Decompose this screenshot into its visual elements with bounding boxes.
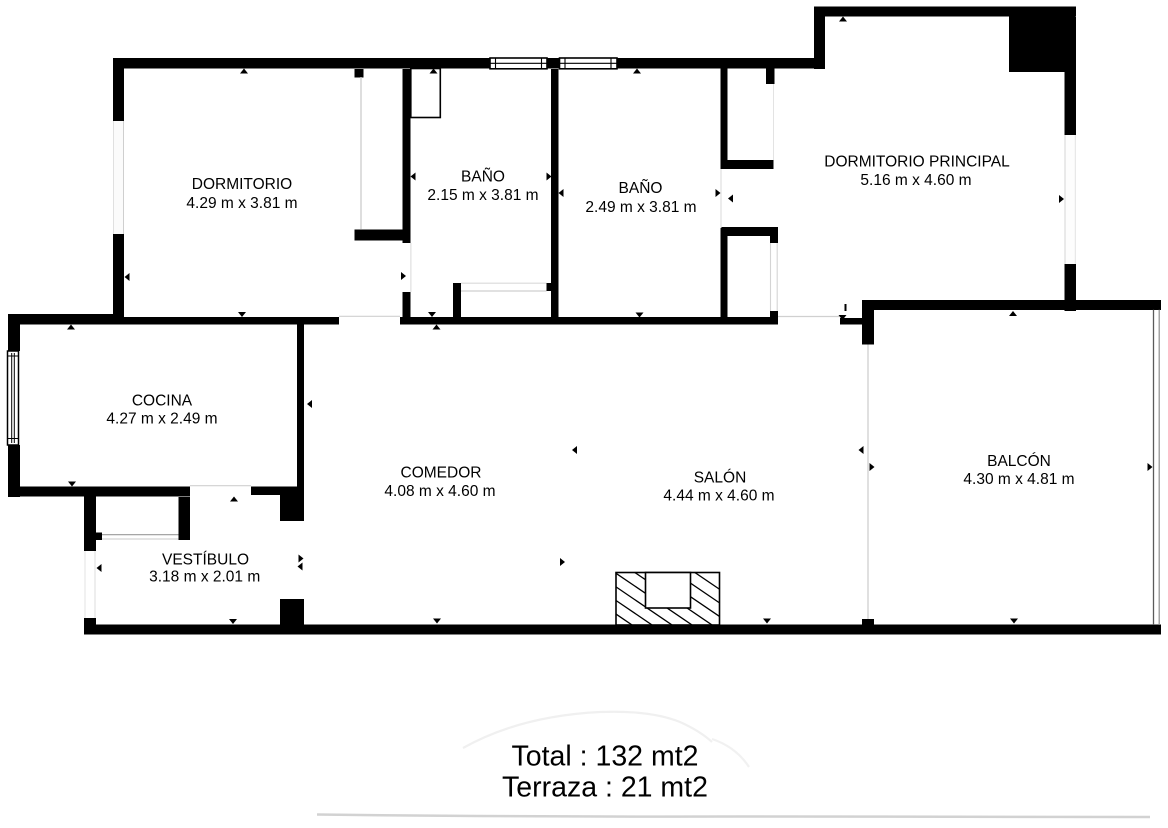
svg-text:BAÑO: BAÑO xyxy=(461,169,505,186)
svg-text:2.49 m x 3.81 m: 2.49 m x 3.81 m xyxy=(585,199,696,216)
svg-text:COMEDOR: COMEDOR xyxy=(401,465,482,482)
svg-text:4.08 m x 4.60 m: 4.08 m x 4.60 m xyxy=(384,483,495,500)
svg-text:3.18 m x 2.01 m: 3.18 m x 2.01 m xyxy=(149,569,260,586)
svg-text:4.27 m x 2.49 m: 4.27 m x 2.49 m xyxy=(106,411,217,428)
svg-text:5.16 m x 4.60 m: 5.16 m x 4.60 m xyxy=(860,172,971,189)
svg-text:DORMITORIO PRINCIPAL: DORMITORIO PRINCIPAL xyxy=(824,154,1010,171)
svg-text:SALÓN: SALÓN xyxy=(694,470,747,487)
svg-text:COCINA: COCINA xyxy=(132,393,193,410)
svg-text:4.29 m x 3.81 m: 4.29 m x 3.81 m xyxy=(186,195,297,212)
svg-text:4.44 m x 4.60 m: 4.44 m x 4.60 m xyxy=(663,488,774,505)
svg-text:BALCÓN: BALCÓN xyxy=(987,453,1051,470)
svg-text:Terraza : 21 mt2: Terraza : 21 mt2 xyxy=(502,772,708,804)
svg-text:VESTÍBULO: VESTÍBULO xyxy=(162,552,249,569)
svg-text:Total : 132 mt2: Total : 132 mt2 xyxy=(512,741,699,773)
svg-text:4.30 m x 4.81 m: 4.30 m x 4.81 m xyxy=(963,471,1074,488)
svg-text:2.15 m x 3.81 m: 2.15 m x 3.81 m xyxy=(427,187,538,204)
svg-text:BAÑO: BAÑO xyxy=(619,180,663,197)
svg-text:DORMITORIO: DORMITORIO xyxy=(192,176,292,193)
